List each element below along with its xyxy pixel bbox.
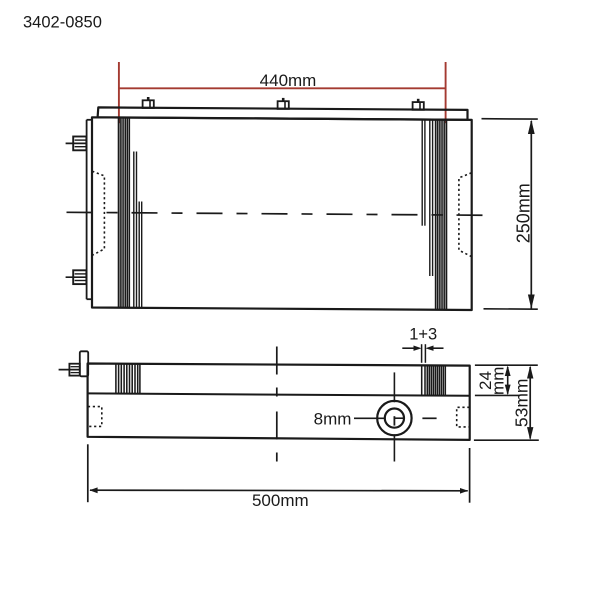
svg-text:1+3: 1+3 xyxy=(409,325,437,343)
svg-text:250mm: 250mm xyxy=(514,183,534,243)
svg-text:mm: mm xyxy=(489,367,508,395)
svg-text:8mm: 8mm xyxy=(314,410,352,429)
svg-text:440mm: 440mm xyxy=(260,71,317,90)
svg-text:3402-0850: 3402-0850 xyxy=(23,14,102,32)
svg-text:500mm: 500mm xyxy=(252,491,309,510)
svg-text:53mm: 53mm xyxy=(512,378,532,427)
